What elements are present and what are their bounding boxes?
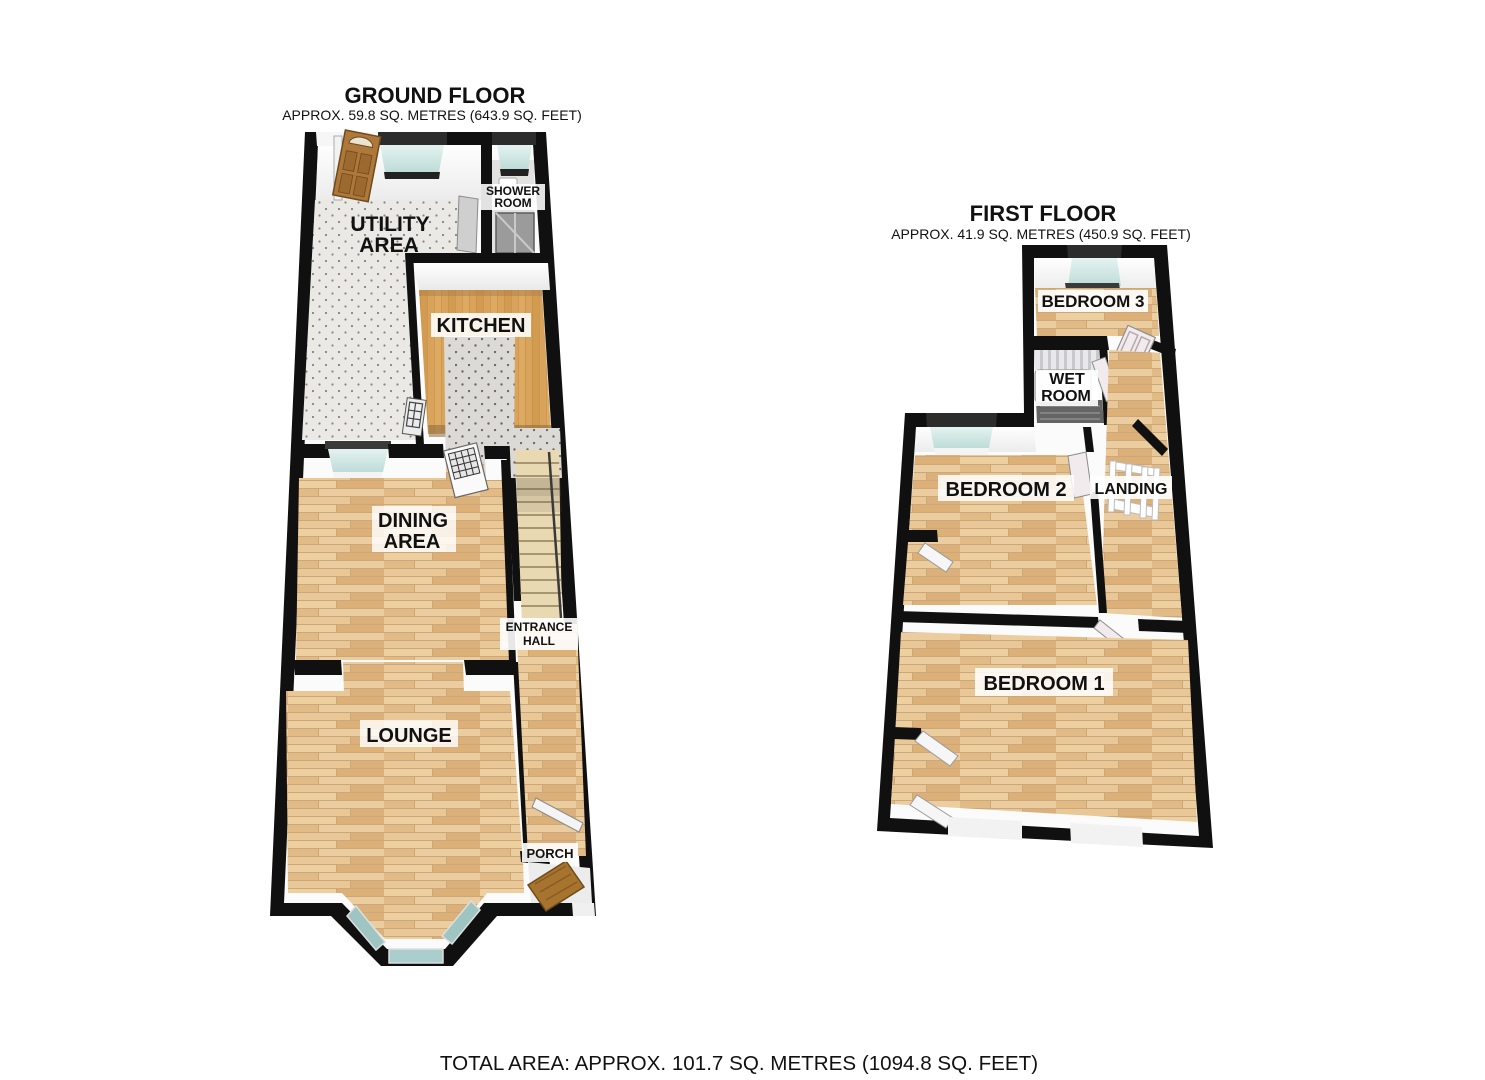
svg-text:BEDROOM 3: BEDROOM 3	[1042, 292, 1145, 311]
svg-text:LOUNGE: LOUNGE	[366, 725, 452, 747]
svg-text:GROUND FLOOR: GROUND FLOOR	[345, 83, 526, 108]
svg-text:ENTRANCE: ENTRANCE	[506, 620, 573, 634]
svg-text:BEDROOM 2: BEDROOM 2	[945, 479, 1066, 501]
svg-text:APPROX. 59.8 SQ. METRES (643.9: APPROX. 59.8 SQ. METRES (643.9 SQ. FEET)	[282, 107, 582, 123]
svg-text:TOTAL AREA: APPROX. 101.7 SQ.: TOTAL AREA: APPROX. 101.7 SQ. METRES (10…	[440, 1052, 1038, 1075]
svg-text:ROOM: ROOM	[494, 196, 531, 210]
svg-text:DINING: DINING	[378, 510, 448, 532]
svg-text:BEDROOM 1: BEDROOM 1	[983, 673, 1104, 695]
svg-text:FIRST FLOOR: FIRST FLOOR	[970, 201, 1117, 226]
svg-text:ROOM: ROOM	[1041, 388, 1091, 405]
svg-text:AREA: AREA	[384, 531, 441, 553]
svg-text:APPROX. 41.9 SQ. METRES (450.9: APPROX. 41.9 SQ. METRES (450.9 SQ. FEET)	[891, 226, 1191, 242]
svg-text:WET: WET	[1049, 371, 1085, 388]
svg-text:UTILITY: UTILITY	[350, 213, 429, 236]
svg-text:AREA: AREA	[359, 234, 419, 257]
svg-text:HALL: HALL	[523, 634, 555, 648]
svg-text:PORCH: PORCH	[527, 846, 574, 861]
svg-text:KITCHEN: KITCHEN	[437, 315, 526, 337]
svg-text:LANDING: LANDING	[1095, 481, 1168, 498]
